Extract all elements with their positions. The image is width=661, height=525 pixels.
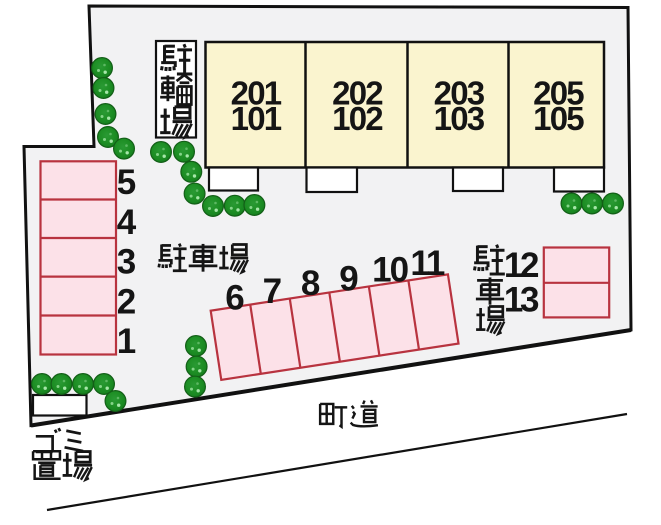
svg-text:8: 8 [301, 264, 320, 303]
svg-text:7: 7 [263, 272, 282, 311]
svg-text:105: 105 [533, 100, 584, 137]
svg-text:1: 1 [117, 322, 136, 361]
svg-text:10: 10 [372, 251, 408, 290]
svg-text:9: 9 [339, 259, 358, 298]
svg-text:103: 103 [434, 100, 485, 137]
svg-text:6: 6 [225, 279, 244, 318]
svg-text:4: 4 [117, 203, 137, 242]
svg-text:11: 11 [410, 244, 445, 283]
svg-text:102: 102 [332, 100, 383, 137]
svg-text:13: 13 [504, 281, 539, 320]
svg-text:12: 12 [504, 246, 539, 285]
svg-text:5: 5 [117, 163, 136, 202]
svg-text:2: 2 [117, 282, 136, 321]
svg-text:101: 101 [231, 100, 282, 137]
svg-text:3: 3 [117, 243, 136, 282]
